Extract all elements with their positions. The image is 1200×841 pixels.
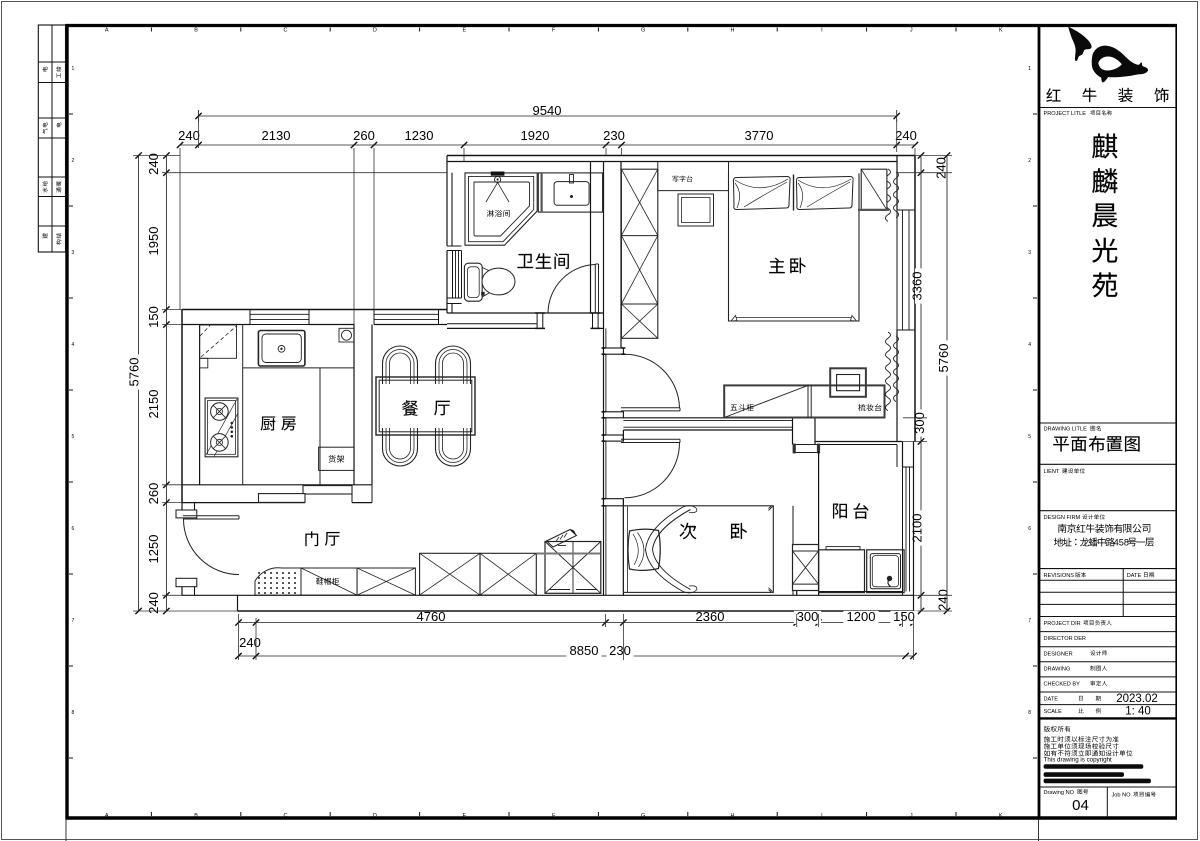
svg-text:4: 4 [1028, 342, 1031, 348]
svg-text:2360: 2360 [696, 609, 725, 624]
svg-text:6: 6 [72, 526, 75, 532]
svg-text:5: 5 [1028, 434, 1031, 440]
svg-text:2023.02: 2023.02 [1116, 693, 1158, 705]
svg-text:5760: 5760 [127, 358, 142, 387]
svg-text:3: 3 [72, 250, 75, 256]
svg-text:REVISIONS: REVISIONS [1044, 573, 1075, 579]
svg-text:G: G [641, 813, 645, 819]
svg-text:3770: 3770 [745, 128, 774, 143]
svg-text:A: A [105, 28, 109, 34]
svg-text:K: K [999, 28, 1003, 34]
svg-text:240: 240 [936, 589, 951, 611]
svg-text:H: H [731, 813, 735, 819]
svg-text:C: C [284, 813, 288, 819]
svg-text:240: 240 [146, 153, 161, 175]
svg-text:150: 150 [893, 609, 915, 624]
svg-text:04: 04 [1072, 797, 1089, 814]
svg-text:1230: 1230 [405, 128, 434, 143]
svg-text:DESIGN FIRM: DESIGN FIRM [1044, 515, 1081, 521]
svg-text:1920: 1920 [521, 128, 550, 143]
svg-text:230: 230 [609, 643, 631, 658]
svg-text:LIENT: LIENT [1044, 469, 1060, 475]
svg-text:PROJECT LITLE: PROJECT LITLE [1044, 111, 1087, 117]
svg-text:1: 40: 1: 40 [1125, 706, 1151, 718]
svg-text:Job NO: Job NO [1112, 793, 1132, 799]
svg-text:2100: 2100 [910, 514, 925, 543]
svg-text:H: H [731, 28, 735, 34]
svg-text:230: 230 [603, 128, 625, 143]
svg-text:240: 240 [146, 592, 161, 614]
svg-text:DRAWING LITLE: DRAWING LITLE [1044, 427, 1088, 433]
svg-text:7: 7 [1028, 618, 1031, 624]
svg-text:5: 5 [72, 434, 75, 440]
svg-text:2130: 2130 [262, 128, 291, 143]
svg-text:8850: 8850 [570, 643, 599, 658]
svg-text:3360: 3360 [910, 272, 925, 301]
svg-text:260: 260 [353, 128, 375, 143]
svg-text:260: 260 [146, 483, 161, 505]
svg-text:K: K [999, 813, 1003, 819]
svg-text:J: J [910, 813, 913, 819]
svg-text:E: E [462, 813, 466, 819]
svg-text:240: 240 [178, 128, 200, 143]
svg-text:3: 3 [1028, 250, 1031, 256]
svg-text:2: 2 [1028, 158, 1031, 164]
svg-text:1250: 1250 [146, 535, 161, 564]
svg-text:E: E [462, 28, 466, 34]
svg-text:300: 300 [912, 412, 927, 434]
svg-text:Drawing NO: Drawing NO [1044, 790, 1075, 796]
svg-text:1: 1 [1028, 66, 1031, 72]
svg-text:240: 240 [239, 635, 261, 650]
svg-text:This drawing is copyright: This drawing is copyright [1044, 757, 1112, 764]
svg-text:5760: 5760 [936, 344, 951, 373]
svg-text:240: 240 [895, 128, 917, 143]
svg-text:1: 1 [72, 66, 75, 72]
svg-text:D: D [373, 813, 377, 819]
svg-text:458: 458 [1114, 538, 1129, 548]
svg-text:DRAWING: DRAWING [1044, 666, 1071, 672]
svg-text:D: D [373, 28, 377, 34]
svg-text:DIRECTOR DER: DIRECTOR DER [1044, 636, 1086, 642]
svg-text:B: B [194, 28, 198, 34]
svg-text:4760: 4760 [417, 609, 446, 624]
svg-text:C: C [284, 28, 288, 34]
svg-text:2: 2 [72, 158, 75, 164]
svg-text:4: 4 [72, 342, 75, 348]
svg-text:7: 7 [72, 618, 75, 624]
svg-text:1950: 1950 [146, 227, 161, 256]
svg-text:DESIGNER: DESIGNER [1044, 651, 1073, 657]
svg-text:8: 8 [1028, 710, 1031, 716]
svg-text:DATE: DATE [1127, 573, 1142, 579]
svg-text:SCALE: SCALE [1044, 709, 1063, 715]
svg-text:G: G [641, 28, 645, 34]
svg-text:240: 240 [934, 157, 949, 179]
svg-text:PROJECT DIR: PROJECT DIR [1044, 621, 1081, 627]
svg-text:J: J [910, 28, 913, 34]
svg-text:8: 8 [72, 710, 75, 716]
svg-text:300: 300 [797, 609, 819, 624]
svg-text:A: A [105, 813, 109, 819]
svg-text:9540: 9540 [533, 103, 562, 118]
svg-text:2150: 2150 [146, 390, 161, 419]
svg-text:DATE: DATE [1044, 697, 1059, 703]
svg-text:150: 150 [146, 306, 161, 328]
svg-text:6: 6 [1028, 526, 1031, 532]
svg-text:CHECKED BY: CHECKED BY [1044, 682, 1081, 688]
svg-text:1200: 1200 [847, 609, 876, 624]
svg-text:B: B [194, 813, 198, 819]
